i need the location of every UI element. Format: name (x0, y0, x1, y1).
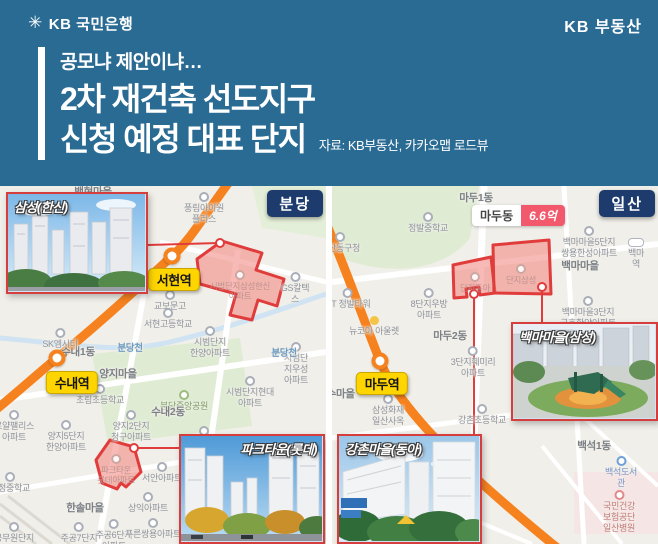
map-label-text: 로얄팰리스 아파트 (0, 421, 34, 443)
map-label-text: KT 정발타워 (332, 299, 370, 310)
map-label-text: 수내2동 (151, 406, 185, 419)
poi-icon (143, 492, 153, 502)
map-label: 국민건강보험공단 일산병원 (600, 490, 639, 533)
map-label: 삼성화재 일산사옥 (372, 394, 404, 427)
map-label: GS칼텍스 (280, 272, 311, 305)
map-label: 주공7단지 아파트 (61, 522, 98, 544)
poi-icon (9, 522, 19, 532)
map-label-text: 강촌초등학교 (458, 415, 506, 426)
map-label: SK엠시티 (42, 328, 77, 350)
map-label: 분당천 (117, 343, 142, 354)
map-label: 백마마을5단지 쌍용한성아파트 (561, 226, 617, 259)
poi-icon (468, 346, 478, 356)
poi-icon (245, 376, 255, 386)
map-label: 마두2동 (433, 330, 467, 343)
map-label: 한솔마을 (66, 502, 103, 515)
photo-label: 파크타운(롯데) (241, 439, 317, 458)
map-label-text: SK엠시티 (42, 339, 77, 350)
poi-icon (584, 226, 594, 236)
redevelopment-zone-donga (453, 257, 495, 298)
connector-dot (538, 283, 546, 291)
title-line1: 2차 재건축 선도지구 (60, 79, 658, 119)
map-label-text: 백마마을5단지 쌍용한성아파트 (561, 237, 617, 259)
map-label-text: 한솔마을 (66, 502, 103, 515)
map-label-text: 수내1동 (61, 346, 95, 359)
map-label-text: 백석도서관 (603, 467, 640, 489)
banner-section: ✳ KB 국민은행 KB 부동산 공모냐 제안이냐… 2차 재건축 선도지구 신… (0, 0, 658, 186)
map-label: 주공6단지 아파트 (96, 519, 133, 544)
poi-icon (291, 342, 301, 352)
map-label: 공무원단지 대림 등 (0, 522, 34, 544)
map-label: KT 정발타워 (332, 288, 370, 310)
map-label-text: 분당천 (117, 343, 142, 354)
map-label-text: 뉴코아 아울렛 (349, 326, 399, 337)
map-label: 양지2단지 청구아파트 (111, 410, 151, 443)
map-label: 단지동아 (460, 272, 490, 293)
map-label: 백석도서관 (603, 456, 640, 489)
map-label: 백마마을 (561, 260, 598, 273)
photo-label: 강촌마을(동아) (345, 439, 421, 458)
map-label: 시범단지 한양아파트 (190, 326, 230, 359)
region-badge-bundang: 분당 (267, 190, 323, 217)
map-label-text: 분당천 (271, 348, 296, 359)
station-name-badge: 수내역 (46, 371, 98, 394)
poi-icon (111, 454, 121, 464)
map-label-text: 마두2동 (433, 330, 467, 343)
map-label: 분당천 (271, 348, 296, 359)
map-label-text: 정발중학교 (408, 223, 448, 234)
connector-dot (216, 239, 224, 247)
poi-icon (628, 238, 644, 247)
map-label: 상익아파트 (128, 492, 168, 514)
title-line2: 신청 예정 대표 단지 (60, 119, 306, 159)
poi-icon (126, 410, 136, 420)
map-label-text: 삼성화재 일산사옥 (372, 405, 404, 427)
map-label: 장수마을 (332, 388, 355, 401)
station-dot-icon (372, 353, 389, 370)
redevelopment-zone-seohyeon (197, 241, 284, 320)
poi-icon (370, 316, 379, 325)
map-label: 교보문고 (154, 290, 186, 312)
poi-icon (205, 326, 215, 336)
map-label-text: 단지삼성 (506, 275, 536, 285)
poi-icon (199, 192, 209, 202)
title-block: 공모냐 제안이냐… 2차 재건축 선도지구 신청 예정 대표 단지 자료: KB… (38, 47, 658, 160)
poi-icon (477, 404, 487, 414)
photo-inset-gangchon-donga: 강촌마을(동아) (337, 434, 482, 544)
map-label: 3단지훼미리 아파트 (451, 346, 496, 379)
poi-icon (423, 212, 433, 222)
redevelopment-zone-samsung (493, 240, 551, 294)
map-label-text: 양지5단지 한양아파트 (46, 431, 86, 453)
region-badge-ilsan: 일산 (599, 190, 655, 217)
connector-dot (470, 290, 478, 298)
map-label: 단지삼성 (506, 264, 536, 285)
map-label: 시범단지우성 아파트 (281, 342, 311, 385)
poi-icon (74, 522, 84, 532)
map-label-text: 시범단지삼성한신 아파트 (210, 281, 270, 301)
poi-icon (343, 288, 353, 298)
map-label-text: 일산동구청 (332, 243, 360, 254)
title-eyebrow: 공모냐 제안이냐… (60, 47, 658, 74)
map-label: 시범단지삼성한신 아파트 (210, 270, 270, 301)
map-label-text: 마두1동 (459, 192, 493, 205)
map-label: 로얄팰리스 아파트 (0, 410, 34, 443)
poi-icon (424, 288, 434, 298)
poi-icon (179, 390, 189, 400)
map-label: 풍림아이원 플러스 (184, 192, 224, 225)
map-label-text: 8단지우방 아파트 (411, 299, 448, 321)
map-label: 일산동구청 (332, 232, 360, 254)
map-label-text: GS칼텍스 (280, 283, 311, 305)
photo-label: 삼성(한신) (14, 197, 68, 216)
station-name-badge: 서현역 (148, 268, 200, 291)
poi-icon (163, 308, 173, 318)
header-row: ✳ KB 국민은행 KB 부동산 (0, 0, 658, 37)
map-label-text: 주공7단지 아파트 (61, 533, 98, 544)
poi-icon (614, 490, 624, 500)
map-label: 푸른쌍용아파트 (125, 518, 181, 540)
kb-star-icon: ✳ (28, 14, 43, 31)
map-label-text: 내정중학교 (0, 483, 30, 494)
map-label: 수내1동 (61, 346, 95, 359)
map-label-text: 서안아파트 (142, 473, 182, 484)
map-label: 파크타운 롯데아파트 (97, 454, 135, 485)
map-label-text: 주공6단지 아파트 (96, 530, 133, 544)
poi-icon (470, 272, 480, 282)
poi-icon (9, 410, 19, 420)
map-label-text: 양지마을 (99, 368, 136, 381)
map-label: 시범단지현대 아파트 (226, 376, 274, 409)
kb-bank-logo: ✳ KB 국민은행 (28, 13, 133, 34)
poi-icon (235, 270, 245, 280)
map-label-text: 백마역 (625, 248, 647, 270)
map-label-text: 양지2단지 청구아파트 (111, 421, 151, 443)
station-name-badge: 마두역 (356, 372, 408, 395)
poi-icon (148, 518, 158, 528)
poi-icon (109, 519, 119, 529)
station-dot-icon (164, 248, 181, 265)
map-label-text: 3단지훼미리 아파트 (451, 357, 496, 379)
price-badge-madu: 마두동 6.6억 (472, 205, 565, 226)
map-label-text: 단지동아 (460, 283, 490, 293)
map-label-text: 초림초등학교 (76, 395, 124, 406)
poi-icon (383, 394, 393, 404)
price-badge-area: 마두동 (472, 205, 521, 226)
rail-crossing-lines (0, 496, 70, 544)
map-bundang: 백현마을 풍림아이원 플러스 GS칼텍스 교보문고 서현고등학교 (0, 186, 326, 544)
map-label-text: 시범단지우성 아파트 (281, 353, 311, 385)
map-label: 정발중학교 (408, 212, 448, 234)
poi-icon (583, 296, 593, 306)
map-label: 백석1동 (577, 440, 611, 453)
source-note: 자료: KB부동산, 카카오맵 로드뷰 (319, 135, 488, 160)
map-label-text: 풍림아이원 플러스 (184, 203, 224, 225)
map-label-text: 교보문고 (154, 301, 186, 312)
poi-icon (335, 232, 345, 242)
photo-inset-parktown-lotte: 파크타운(롯데) (179, 434, 325, 544)
map-label: 강촌초등학교 (458, 404, 506, 426)
photo-inset-samsung-hanshin: 삼성(한신) (6, 192, 148, 294)
poi-icon (5, 472, 15, 482)
map-label: 수내2동 (151, 406, 185, 419)
poi-icon (61, 420, 71, 430)
map-label: 양지5단지 한양아파트 (46, 420, 86, 453)
map-label-text: 상익아파트 (128, 503, 168, 514)
map-label: 서현고등학교 (144, 308, 192, 330)
poi-icon (95, 384, 105, 394)
poi-icon (165, 290, 175, 300)
map-label-text: 분당중앙공원 (160, 401, 208, 412)
poi-icon (616, 456, 626, 466)
photo-label: 백마마을(삼성) (519, 327, 595, 346)
map-label-text: 서현고등학교 (144, 319, 192, 330)
redevelopment-zone-parktown (96, 440, 141, 489)
map-label: 초림초등학교 (76, 384, 124, 406)
map-label-text: 백마마을 (561, 260, 598, 273)
maps-row: 백현마을 풍림아이원 플러스 GS칼텍스 교보문고 서현고등학교 (0, 186, 658, 544)
map-label: 8단지우방 아파트 (411, 288, 448, 321)
kb-redevelopment-infographic: ✳ KB 국민은행 KB 부동산 공모냐 제안이냐… 2차 재건축 선도지구 신… (0, 0, 658, 544)
map-label: 서안아파트 (142, 462, 182, 484)
map-label: 마두1동 (459, 192, 493, 205)
price-badge-value: 6.6억 (521, 205, 565, 226)
map-label-text: 파크타운 롯데아파트 (97, 465, 135, 485)
kb-realestate-brand: KB 부동산 (564, 13, 642, 37)
map-label: 뉴코아 아울렛 (349, 316, 399, 337)
map-label-text: 푸른쌍용아파트 (125, 529, 181, 540)
connector-dot (130, 444, 138, 452)
map-label: 분당중앙공원 (160, 390, 208, 412)
map-label-text: 장수마을 (332, 388, 355, 401)
map-label-text: 백석1동 (577, 440, 611, 453)
map-label-text: 시범단지현대 아파트 (226, 387, 274, 409)
poi-icon (516, 264, 526, 274)
map-label-text: 시범단지 한양아파트 (190, 337, 230, 359)
map-label-text: 국민건강보험공단 일산병원 (600, 501, 639, 533)
connector-line (148, 243, 219, 245)
map-label: 양지마을 (99, 368, 136, 381)
poi-icon (290, 272, 300, 282)
map-label: 내정중학교 (0, 472, 30, 494)
station-dot-icon (49, 350, 66, 367)
poi-icon (157, 462, 167, 472)
bank-name: KB 국민은행 (49, 13, 134, 34)
map-label: 백마역 (625, 238, 647, 270)
photo-inset-baekma-samsung: 백마마을(삼성) (511, 322, 658, 421)
poi-icon (55, 328, 65, 338)
map-label-text: 공무원단지 대림 등 (0, 533, 34, 544)
map-ilsan: 마두1동 정발중학교 일산동구청 백마마을5단지 쌍용한성아파트 백마역 (332, 186, 658, 544)
